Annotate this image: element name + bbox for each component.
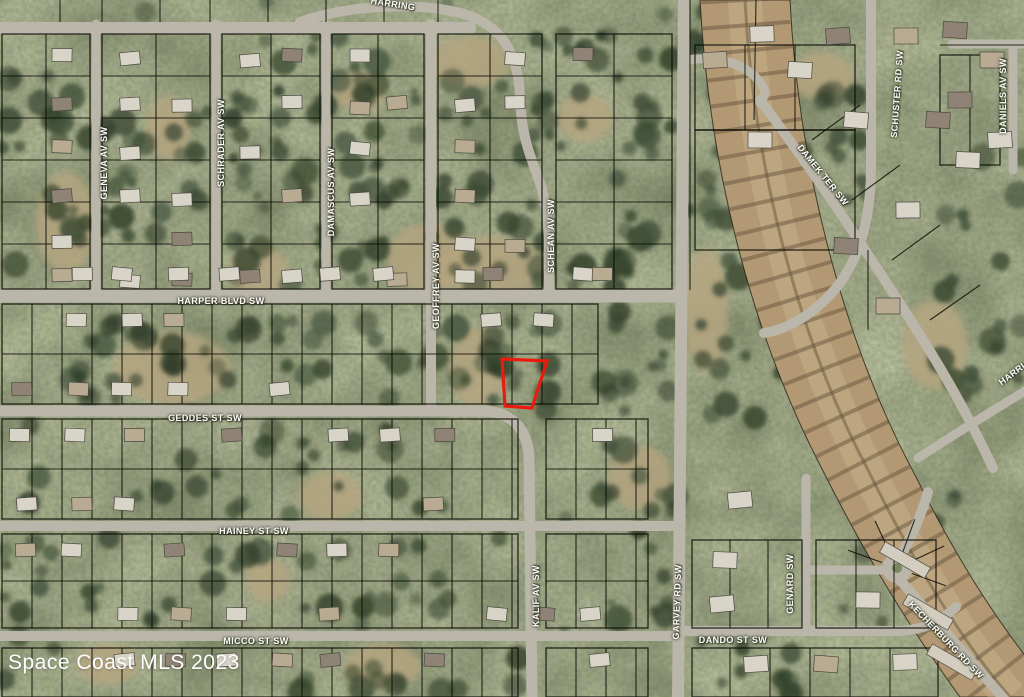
aerial-map-canvas <box>0 0 1024 697</box>
aerial-map[interactable]: HARRING HARPER BLVD SW GEDDES ST SW HAIN… <box>0 0 1024 697</box>
mls-watermark: Space Coast MLS 2023 <box>8 651 240 675</box>
